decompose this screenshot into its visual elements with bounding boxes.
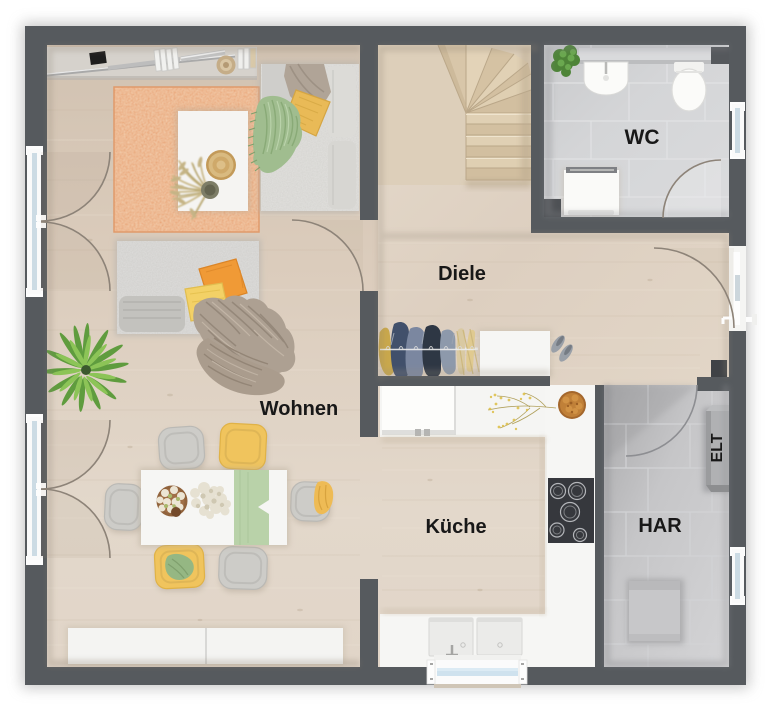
svg-text:HAR: HAR [638, 515, 682, 537]
svg-text:WC: WC [625, 126, 660, 149]
svg-text:Wohnen: Wohnen [260, 398, 339, 420]
svg-text:Diele: Diele [438, 263, 486, 285]
svg-text:Küche: Küche [425, 516, 486, 538]
svg-text:ELT: ELT [709, 433, 726, 462]
